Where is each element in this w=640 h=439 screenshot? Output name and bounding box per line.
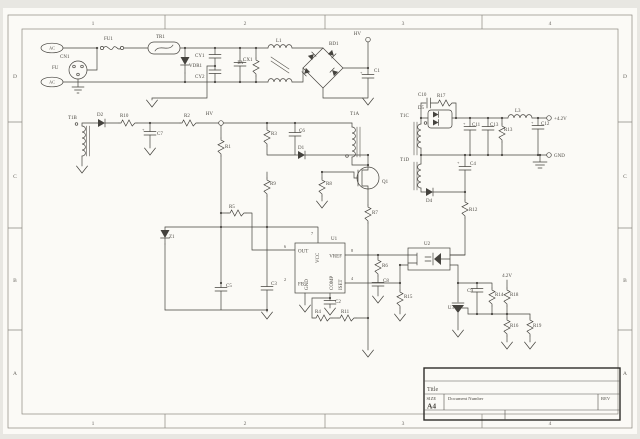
label-z1: Z1 [169,235,175,240]
u1-pin-num-out: 6 [284,244,286,249]
u1-pin-num-vcc: 7 [311,231,313,236]
label-vout: +4.2V [554,117,567,122]
label-r15: R15 [404,295,413,300]
u1-pin-vcc: VCC [316,252,321,263]
label-r12: R12 [469,208,478,213]
label-tr1: TR1 [156,35,165,40]
label-r8: R8 [326,182,332,187]
zone-bottom-2: 2 [244,421,247,427]
zone-left-a: A [13,371,17,377]
u1-pin-num-fb: 2 [284,277,286,282]
zone-left-b: B [13,278,17,284]
label-bd1: BD1 [329,42,339,47]
label-t1b: T1B [68,116,78,121]
label-r4: R4 [315,310,321,315]
label-t1a: T1A [350,112,360,117]
vout-terminal [547,116,552,121]
zone-bottom-3: 3 [402,421,405,427]
label-fu1: FU1 [104,37,113,42]
schematic-drawing: 1 2 3 4 1 2 3 4 D C B A D C B A [0,0,640,439]
u1-pin-num-vref: 8 [351,248,353,253]
label-r17: R17 [437,94,446,99]
label-u3: U3 [448,306,455,311]
label-vdr1: VDR1 [189,64,203,69]
label-r3: R3 [271,132,277,137]
title-label: Title [427,387,438,393]
zone-left-c: C [13,174,17,180]
label-c2: C2 [335,300,341,305]
label-r16: R16 [510,324,519,329]
label-r13: R13 [504,128,513,133]
label-c13: C13 [490,123,499,128]
label-r5: R5 [229,205,235,210]
zone-top-2: 2 [244,21,247,27]
label-r14: R14 [495,293,504,298]
zone-right-b: B [623,278,627,284]
paper [3,8,637,434]
label-c8: C8 [383,279,389,284]
zone-bottom-1: 1 [92,421,95,427]
label-d4: D4 [426,199,433,204]
label-c12: C12 [541,122,550,127]
label-r1: R1 [225,145,231,150]
label-r9: R9 [270,182,276,187]
label-l1: L1 [276,39,282,44]
zone-right-a: A [623,371,627,377]
label-gnd-out: GND [554,154,565,159]
document-number-label: Document Number [448,396,484,401]
label-r11: R11 [341,310,350,315]
label-ry: RY [237,61,244,66]
label-r18: R18 [510,293,519,298]
label-cy2: CY2 [195,75,205,80]
u1-pin-iset: ISET [339,279,344,290]
label-c6: C6 [299,129,305,134]
u1-pin-comp: COMP [330,276,335,290]
label-fb-ref: 4.2V [502,274,512,279]
label-c1: C1 [374,69,380,74]
label-q1: Q1 [382,180,389,185]
label-r2: R2 [184,114,190,119]
size-value: A4 [427,402,436,411]
zone-right-d: D [623,74,627,80]
label-hv-tap: HV [206,112,214,117]
u1-pin-fb: FB [298,283,305,288]
hv-tap-terminal [219,121,224,126]
label-ac-top: AC [49,46,55,51]
label-c9: C9 [467,289,473,294]
u1-pin-vref: VREF [329,255,342,260]
zone-top-4: 4 [549,21,552,27]
label-ac-bottom: AC [49,80,55,85]
schematic-sheet: 1 2 3 4 1 2 3 4 D C B A D C B A [0,0,640,439]
zone-left-d: D [13,74,17,80]
label-fu: FU [52,66,59,71]
label-d5: D5 [418,106,425,111]
label-r10: R10 [120,114,129,119]
u1-pin-gnd: GND [305,279,310,290]
label-cn1: CN1 [60,55,70,60]
size-label: SIZE [427,396,437,401]
label-cx1: CX1 [243,58,253,63]
label-c10: C10 [418,93,427,98]
u1-pin-out: OUT [298,250,308,255]
label-t1c: T1C [400,114,410,119]
label-r7: R7 [372,211,378,216]
label-c7: C7 [157,132,163,137]
label-t1d: T1D [400,158,410,163]
label-d2: D2 [97,113,104,118]
zone-bottom-4: 4 [549,421,552,427]
rev-label: REV [601,396,611,401]
label-cy1: CY1 [195,54,205,59]
label-hv-bulk: HV [354,32,362,37]
hv-terminal [366,37,371,42]
zone-top-3: 3 [402,21,405,27]
label-l3: L3 [515,109,521,114]
label-c4: C4 [470,162,476,167]
label-r6: R6 [382,264,388,269]
label-r19: R19 [533,324,542,329]
label-c3: C3 [271,282,277,287]
zone-right-c: C [623,174,627,180]
label-u1: U1 [331,237,338,242]
label-c11: C11 [472,123,481,128]
label-c5: C5 [226,284,232,289]
label-d1: D1 [298,146,305,151]
label-u2: U2 [424,242,431,247]
gnd-terminal [547,153,552,158]
zone-top-1: 1 [92,21,95,27]
